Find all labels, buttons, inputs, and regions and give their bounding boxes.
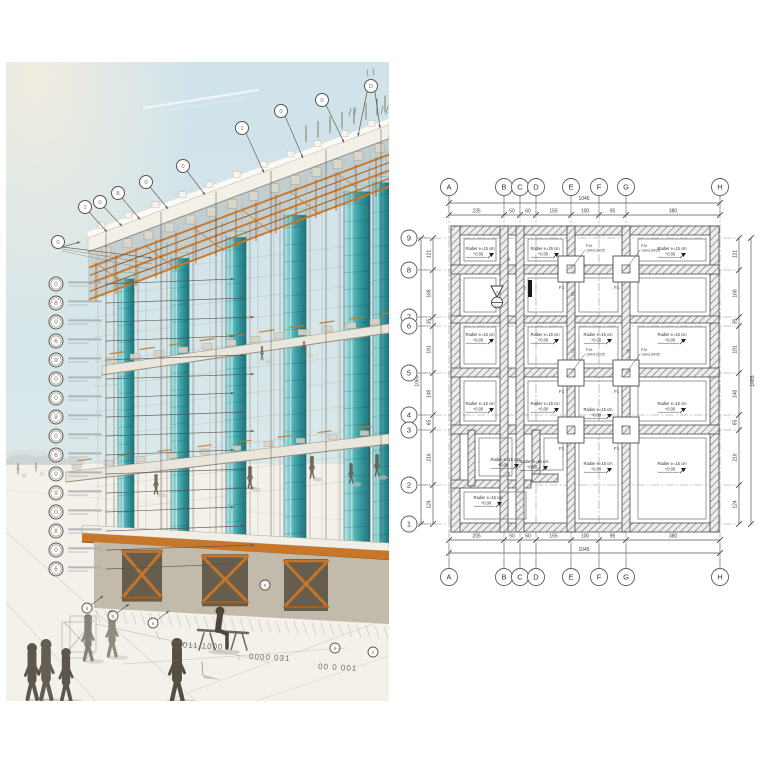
svg-text:G: G bbox=[623, 573, 629, 582]
svg-text:D: D bbox=[369, 84, 373, 90]
svg-text:0: 0 bbox=[320, 98, 323, 104]
svg-text:35: 35 bbox=[427, 319, 433, 325]
svg-text:0: 0 bbox=[54, 319, 58, 326]
svg-text:2: 2 bbox=[496, 291, 498, 295]
svg-text:0: 0 bbox=[54, 281, 58, 288]
svg-text:155: 155 bbox=[549, 209, 558, 215]
svg-text:0: 0 bbox=[54, 509, 58, 516]
svg-text:2: 2 bbox=[407, 481, 411, 490]
svg-text:15: 15 bbox=[571, 349, 575, 353]
svg-text:+0.00: +0.00 bbox=[591, 413, 602, 418]
svg-text:A: A bbox=[446, 573, 451, 582]
svg-text:65: 65 bbox=[733, 420, 739, 426]
svg-text:C: C bbox=[517, 573, 523, 582]
svg-text:P.M.: P.M. bbox=[641, 244, 648, 248]
svg-text:148: 148 bbox=[733, 390, 739, 399]
svg-text:H: H bbox=[717, 573, 722, 582]
svg-text:1: 1 bbox=[240, 126, 243, 132]
svg-text:50: 50 bbox=[571, 292, 575, 296]
svg-text:0: 0 bbox=[54, 395, 58, 402]
svg-text:0: 0 bbox=[56, 240, 59, 246]
svg-text:+0.00: +0.00 bbox=[498, 463, 509, 468]
svg-text:G: G bbox=[623, 183, 629, 192]
svg-text:+0.00: +0.00 bbox=[538, 338, 549, 343]
svg-text:124: 124 bbox=[733, 500, 739, 509]
svg-text:+0.00: +0.00 bbox=[665, 338, 676, 343]
svg-text:E: E bbox=[568, 573, 573, 582]
dimension-chain-left: 12116835191148652161241065 bbox=[415, 235, 436, 526]
svg-text:50: 50 bbox=[509, 534, 515, 540]
svg-text:B: B bbox=[501, 573, 506, 582]
svg-text:6: 6 bbox=[407, 322, 411, 331]
svg-text:8: 8 bbox=[54, 300, 58, 307]
svg-text:216: 216 bbox=[733, 453, 739, 462]
foundation-floor-plan: F1P.M.130x130/35F1P.M.130x130/35F1P.M.13… bbox=[393, 168, 768, 602]
svg-text:8: 8 bbox=[54, 528, 58, 535]
svg-text:380: 380 bbox=[669, 209, 678, 215]
svg-text:Radier e=15 cm: Radier e=15 cm bbox=[657, 401, 687, 406]
svg-text:+0.00: +0.00 bbox=[538, 407, 549, 412]
svg-text:1: 1 bbox=[407, 520, 411, 529]
svg-text:0: 0 bbox=[144, 180, 147, 186]
svg-text:35: 35 bbox=[733, 319, 739, 325]
svg-text:P.M.: P.M. bbox=[641, 348, 648, 352]
svg-text:F: F bbox=[597, 183, 602, 192]
svg-text:F: F bbox=[597, 573, 602, 582]
svg-text:Radier e=15 cm: Radier e=15 cm bbox=[583, 461, 613, 466]
svg-text:95: 95 bbox=[610, 534, 616, 540]
svg-text:Radier e=15 cm: Radier e=15 cm bbox=[583, 407, 613, 412]
svg-text:0: 0 bbox=[54, 433, 58, 440]
svg-text:0: 0 bbox=[54, 376, 58, 383]
svg-text:+0.00: +0.00 bbox=[665, 407, 676, 412]
svg-text:380: 380 bbox=[669, 534, 678, 540]
svg-text:216: 216 bbox=[427, 453, 433, 462]
svg-text:A: A bbox=[446, 183, 451, 192]
svg-text:168: 168 bbox=[427, 289, 433, 298]
svg-text:130x130/35: 130x130/35 bbox=[586, 248, 605, 252]
svg-text:P-0: P-0 bbox=[495, 304, 500, 308]
svg-text:+0.00: +0.00 bbox=[591, 467, 602, 472]
svg-text:+0.00: +0.00 bbox=[591, 338, 602, 343]
dimension-chain-right: 12116835191148652161241065 bbox=[733, 235, 757, 526]
svg-text:F1: F1 bbox=[614, 446, 620, 451]
svg-text:0: 0 bbox=[54, 547, 58, 554]
svg-text:100: 100 bbox=[581, 534, 590, 540]
svg-text:1045: 1045 bbox=[578, 547, 589, 553]
svg-text:235: 235 bbox=[472, 209, 481, 215]
svg-text:+0.00: +0.00 bbox=[665, 467, 676, 472]
svg-text:Radier e=15 cm: Radier e=15 cm bbox=[465, 332, 495, 337]
svg-text:0: 0 bbox=[279, 109, 282, 115]
svg-text:0: 0 bbox=[54, 471, 58, 478]
svg-text:+0.00: +0.00 bbox=[473, 338, 484, 343]
svg-text:D: D bbox=[533, 573, 539, 582]
svg-text:C: C bbox=[517, 183, 523, 192]
svg-text:F1: F1 bbox=[559, 285, 565, 290]
svg-text:H: H bbox=[717, 183, 722, 192]
svg-text:100: 100 bbox=[581, 209, 590, 215]
svg-text:60: 60 bbox=[525, 209, 531, 215]
svg-text:0: 0 bbox=[98, 200, 101, 206]
svg-text:3: 3 bbox=[407, 426, 411, 435]
svg-text:+0.00: +0.00 bbox=[473, 252, 484, 257]
svg-text:148: 148 bbox=[427, 390, 433, 399]
section-marker: 2P-0 bbox=[491, 280, 532, 308]
svg-text:9: 9 bbox=[54, 357, 58, 364]
svg-text:1065: 1065 bbox=[750, 375, 756, 386]
svg-text:1: 1 bbox=[83, 205, 86, 211]
svg-text:205: 205 bbox=[472, 534, 481, 540]
svg-text:65: 65 bbox=[427, 420, 433, 426]
svg-text:60: 60 bbox=[525, 534, 531, 540]
dimension-chain-top: 2355060155100953801045 bbox=[446, 196, 722, 218]
svg-text:1045: 1045 bbox=[578, 196, 589, 202]
svg-text:+0.00: +0.00 bbox=[527, 465, 538, 470]
svg-text:Radier e=15 cm: Radier e=15 cm bbox=[530, 332, 560, 337]
svg-text:50: 50 bbox=[507, 472, 511, 476]
svg-text:Radier e=15 cm: Radier e=15 cm bbox=[473, 495, 503, 500]
svg-text:50: 50 bbox=[507, 257, 511, 261]
svg-text:F1: F1 bbox=[614, 285, 620, 290]
svg-text:6: 6 bbox=[54, 566, 58, 573]
svg-text:Radier e=15 cm: Radier e=15 cm bbox=[465, 246, 495, 251]
svg-text:6: 6 bbox=[54, 338, 58, 345]
svg-text:Radier e=15 cm: Radier e=15 cm bbox=[657, 246, 687, 251]
svg-text:Radier e=15 cm: Radier e=15 cm bbox=[657, 332, 687, 337]
svg-text:15: 15 bbox=[523, 286, 527, 290]
svg-text:9: 9 bbox=[54, 490, 58, 497]
svg-text:8: 8 bbox=[54, 414, 58, 421]
svg-text:+0.00: +0.00 bbox=[665, 252, 676, 257]
svg-text:Radier e=15 cm: Radier e=15 cm bbox=[490, 457, 520, 462]
svg-text:8: 8 bbox=[116, 191, 119, 197]
strip-footings bbox=[451, 226, 719, 532]
svg-text:+0.00: +0.00 bbox=[481, 501, 492, 506]
svg-text:Radier e=15 cm: Radier e=15 cm bbox=[530, 246, 560, 251]
svg-text:F1: F1 bbox=[559, 446, 565, 451]
svg-text:D: D bbox=[533, 183, 539, 192]
svg-text:0: 0 bbox=[181, 164, 184, 170]
construction-illustration-panel: 0806900806090806010800100D8060900 011 10… bbox=[6, 62, 389, 701]
svg-text:P.M.: P.M. bbox=[586, 348, 593, 352]
svg-text:124: 124 bbox=[427, 500, 433, 509]
svg-text:9: 9 bbox=[407, 234, 411, 243]
svg-text:130x130/35: 130x130/35 bbox=[586, 352, 605, 356]
svg-text:Radier e=15 cm: Radier e=15 cm bbox=[583, 332, 613, 337]
figure-canvas: 0806900806090806010800100D8060900 011 10… bbox=[0, 0, 768, 763]
svg-text:P.M.: P.M. bbox=[586, 244, 593, 248]
svg-text:Radier e=15 cm: Radier e=15 cm bbox=[657, 461, 687, 466]
svg-text:F1: F1 bbox=[559, 389, 565, 394]
svg-text:F1: F1 bbox=[614, 389, 620, 394]
svg-text:15: 15 bbox=[626, 349, 630, 353]
svg-text:B: B bbox=[501, 183, 506, 192]
svg-text:130x130/35: 130x130/35 bbox=[641, 352, 660, 356]
svg-text:+0.00: +0.00 bbox=[538, 252, 549, 257]
svg-text:Radier e=15 cm: Radier e=15 cm bbox=[530, 401, 560, 406]
svg-text:5: 5 bbox=[407, 369, 411, 378]
svg-text:E: E bbox=[568, 183, 573, 192]
svg-text:121: 121 bbox=[427, 250, 433, 259]
svg-text:155: 155 bbox=[549, 534, 558, 540]
dimension-chain-bottom: 2055060155100953801045 bbox=[446, 534, 722, 556]
svg-text:+0.00: +0.00 bbox=[473, 407, 484, 412]
svg-text:95: 95 bbox=[610, 209, 616, 215]
svg-text:8: 8 bbox=[407, 266, 411, 275]
floor-plan-panel: F1P.M.130x130/35F1P.M.130x130/35F1P.M.13… bbox=[393, 168, 768, 602]
svg-text:121: 121 bbox=[733, 250, 739, 259]
svg-text:191: 191 bbox=[733, 345, 739, 354]
svg-text:Radier e=15 cm: Radier e=15 cm bbox=[465, 401, 495, 406]
svg-text:50: 50 bbox=[509, 209, 515, 215]
svg-text:Radier e=15 cm: Radier e=15 cm bbox=[519, 459, 549, 464]
svg-text:191: 191 bbox=[427, 345, 433, 354]
svg-text:6: 6 bbox=[54, 452, 58, 459]
construction-illustration: 0806900806090806010800100D8060900 011 10… bbox=[6, 62, 389, 701]
svg-text:4: 4 bbox=[407, 411, 411, 420]
svg-text:168: 168 bbox=[733, 289, 739, 298]
